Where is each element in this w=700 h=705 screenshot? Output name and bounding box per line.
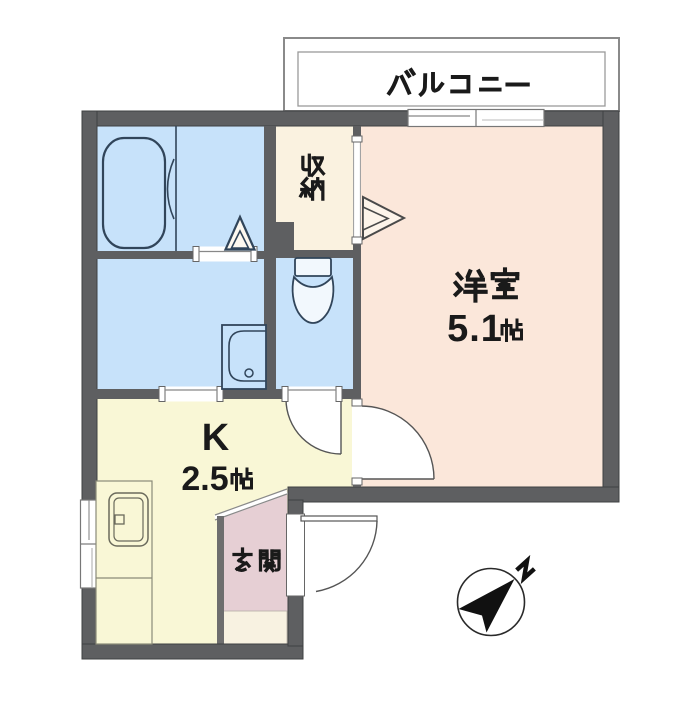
svg-text:2.5: 2.5 bbox=[181, 460, 228, 498]
svg-text:5.1: 5.1 bbox=[447, 308, 503, 350]
svg-text:K: K bbox=[202, 417, 230, 459]
